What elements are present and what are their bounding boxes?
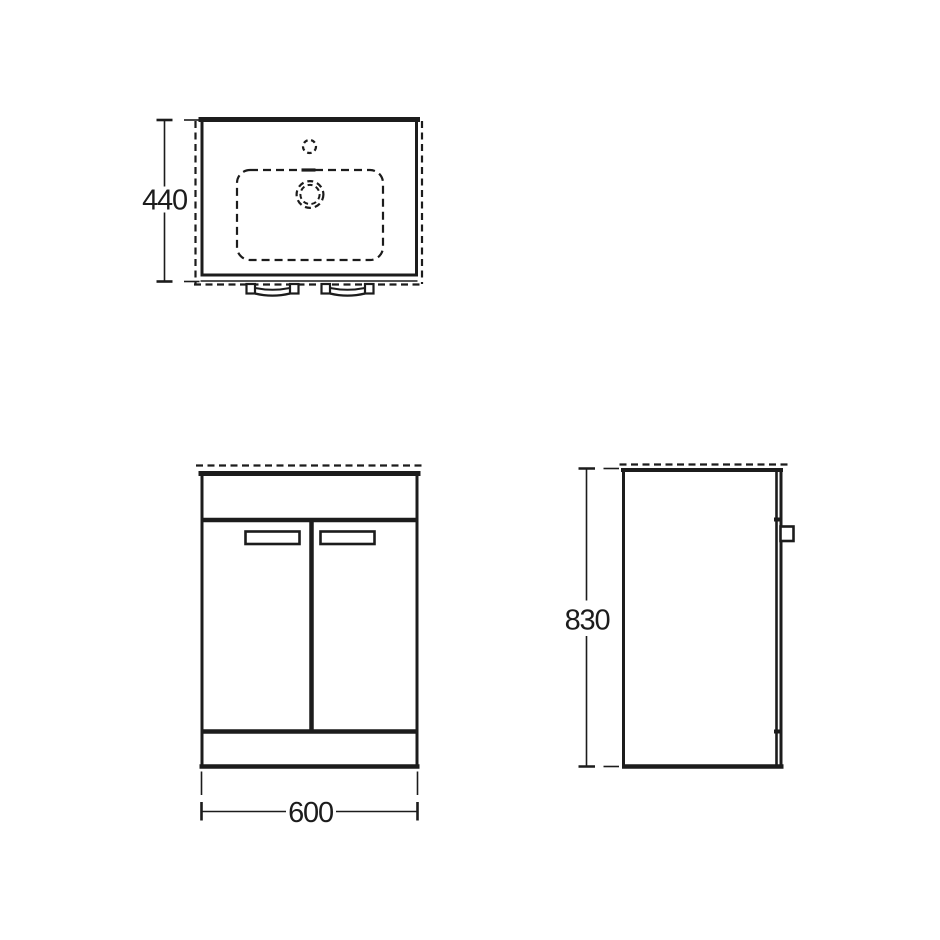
plan-handle-right-tab-b <box>365 284 374 294</box>
plan-handle-left-band-bottom <box>255 294 290 296</box>
side-door-handle <box>781 527 794 542</box>
dim-830-label: 830 <box>565 605 610 637</box>
plan-door-handle-right <box>322 284 374 296</box>
plan-view <box>194 120 424 296</box>
technical-drawing-canvas: 440 600 <box>0 0 940 940</box>
dimension-830: 830 <box>565 469 619 767</box>
dimension-600: 600 <box>202 772 418 830</box>
plan-handle-left-tab-a <box>247 284 256 294</box>
side-view <box>620 465 794 767</box>
plan-handle-right-band-bottom <box>330 294 365 296</box>
dim-600-label: 600 <box>288 797 333 829</box>
plan-handle-right-tab-a <box>322 284 331 294</box>
plan-handle-left-tab-b <box>290 284 299 294</box>
plan-basin-top-outline <box>202 120 417 276</box>
dimension-440: 440 <box>142 120 199 282</box>
side-cabinet-body <box>624 470 782 767</box>
front-view <box>196 466 423 767</box>
technical-drawing-page: 440 600 <box>0 0 940 940</box>
front-door-handle-left <box>246 532 300 545</box>
plan-handle-right-band-top <box>330 288 365 290</box>
plan-door-handle-left <box>247 284 299 296</box>
dim-440-label: 440 <box>142 185 187 217</box>
front-door-handle-right <box>321 532 375 545</box>
plan-handle-left-band-top <box>255 288 290 290</box>
